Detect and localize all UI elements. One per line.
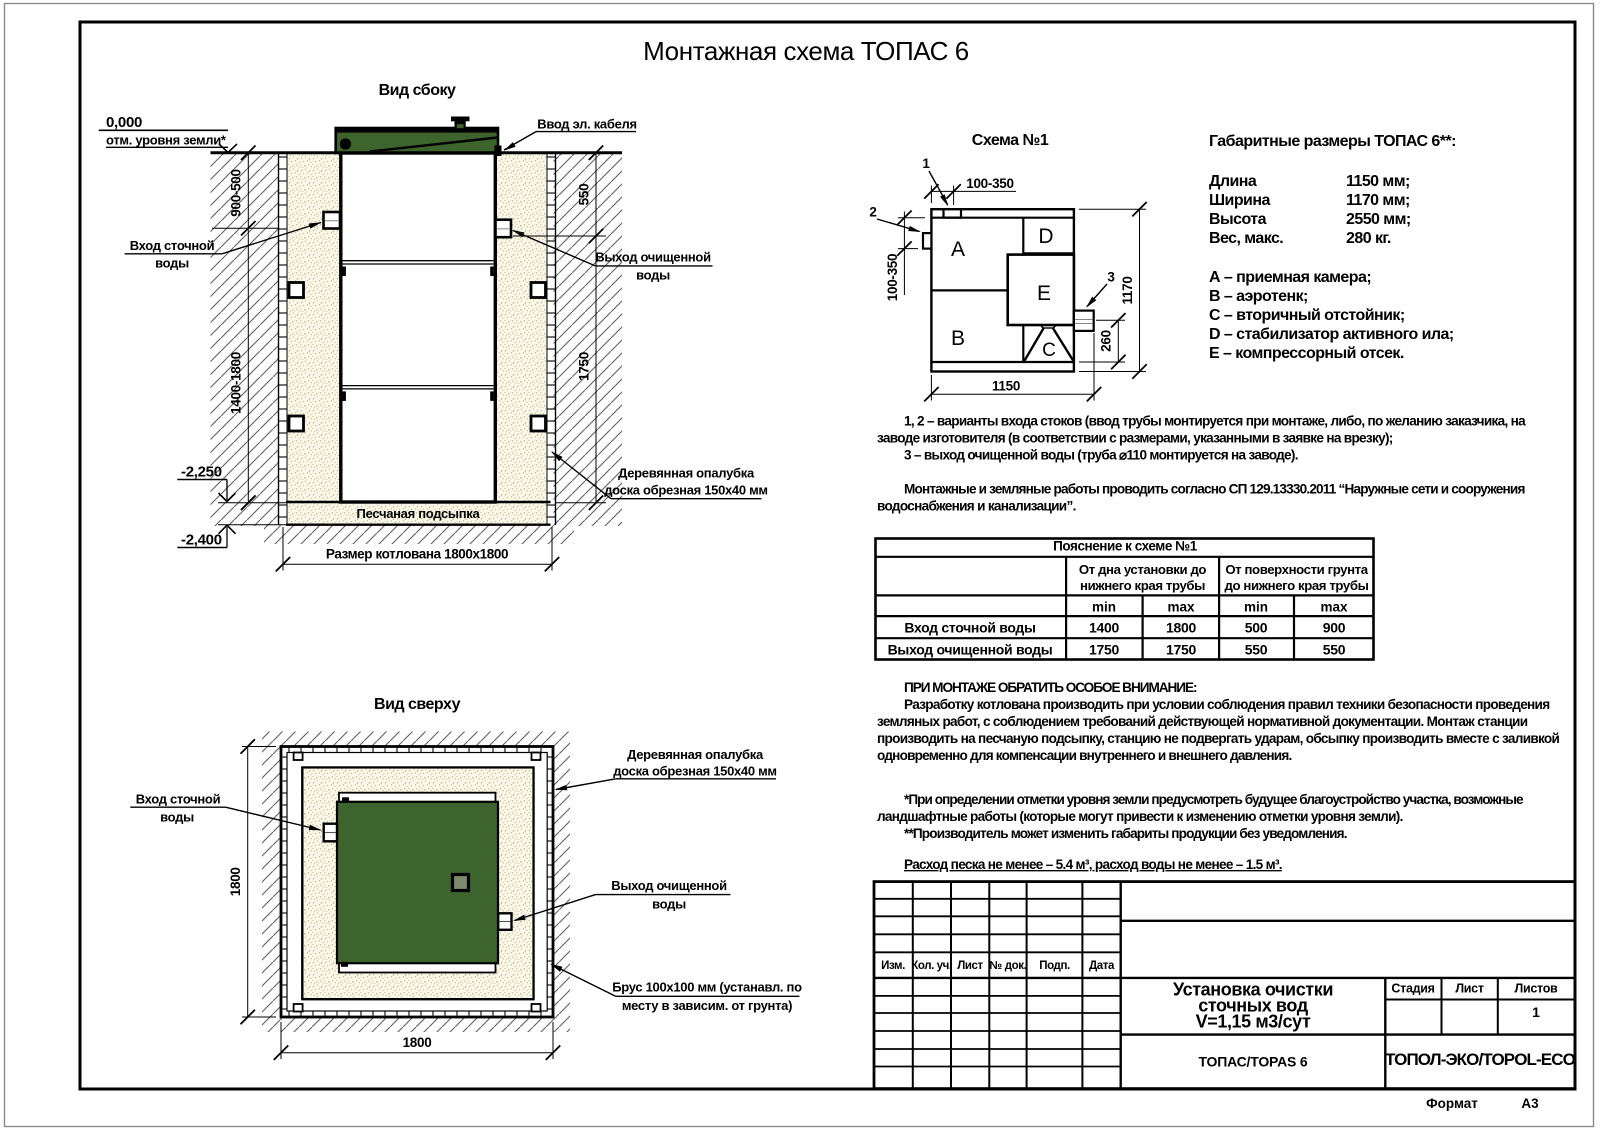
svg-text:Схема №1: Схема №1 <box>972 132 1049 149</box>
svg-text:№ док.: № док. <box>990 960 1027 972</box>
svg-text:воды: воды <box>155 256 189 271</box>
svg-text:месту в зависим. от грунта): месту в зависим. от грунта) <box>622 998 792 1013</box>
svg-text:ТОПАС/TOPAS 6: ТОПАС/TOPAS 6 <box>1199 1054 1308 1070</box>
svg-text:C: C <box>1042 340 1056 361</box>
svg-text:отм. уровня земли*: отм. уровня земли* <box>106 133 227 148</box>
svg-text:От поверхности грунта: От поверхности грунта <box>1225 562 1368 577</box>
svg-text:2550 мм;: 2550 мм; <box>1346 211 1411 228</box>
svg-text:1750: 1750 <box>1089 642 1119 658</box>
svg-text:одновременно для компенсации в: одновременно для компенсации внутреннего… <box>877 748 1291 763</box>
svg-text:Монтажные и земляные работы пр: Монтажные и земляные работы проводить со… <box>904 482 1525 497</box>
svg-text:max: max <box>1167 600 1195 615</box>
svg-text:100-350: 100-350 <box>966 176 1013 191</box>
svg-text:Деревянная опалубка: Деревянная опалубка <box>627 747 764 762</box>
svg-text:E: E <box>1037 282 1051 305</box>
svg-text:доска обрезная 150х40 мм: доска обрезная 150х40 мм <box>613 764 777 779</box>
svg-text:А – приемная камера;: А – приемная камера; <box>1209 269 1371 286</box>
svg-text:Габаритные размеры ТОПАС 6**:: Габаритные размеры ТОПАС 6**: <box>1209 133 1456 150</box>
svg-text:Подп.: Подп. <box>1039 960 1070 972</box>
svg-text:Ширина: Ширина <box>1209 192 1270 209</box>
svg-text:Брус 100х100 мм (устанавл. по: Брус 100х100 мм (устанавл. по <box>612 980 802 995</box>
svg-text:max: max <box>1320 600 1348 615</box>
svg-text:С – вторичный отстойник;: С – вторичный отстойник; <box>1209 307 1405 324</box>
svg-text:Вид сверху: Вид сверху <box>374 696 461 713</box>
svg-text:0,000: 0,000 <box>106 114 142 131</box>
svg-text:1400: 1400 <box>1089 620 1119 636</box>
svg-text:**Производитель может изменить: **Производитель может изменить габариты … <box>904 826 1347 841</box>
svg-text:Вес, макс.: Вес, макс. <box>1209 230 1283 247</box>
svg-text:Выход очищенной: Выход очищенной <box>595 250 711 265</box>
svg-text:Формат: Формат <box>1426 1096 1478 1111</box>
svg-text:Пояснение к схеме №1: Пояснение к схеме №1 <box>1053 539 1198 554</box>
svg-text:Выход очищенной воды: Выход очищенной воды <box>888 642 1053 658</box>
svg-text:А3: А3 <box>1521 1096 1539 1111</box>
svg-text:ТОПОЛ-ЭКО/TOPOL-ECO: ТОПОЛ-ЭКО/TOPOL-ECO <box>1385 1050 1576 1069</box>
svg-text:Изм.: Изм. <box>881 960 905 972</box>
svg-text:260: 260 <box>1099 330 1114 352</box>
svg-text:Вход сточной воды: Вход сточной воды <box>904 620 1035 636</box>
svg-text:1170 мм;: 1170 мм; <box>1346 192 1410 209</box>
svg-text:до нижнего края трубы: до нижнего края трубы <box>1225 578 1369 593</box>
svg-text:*При определении отметки уровн: *При определении отметки уровня земли пр… <box>904 792 1524 807</box>
svg-text:производить на песчаную подсып: производить на песчаную подсыпку, станци… <box>877 731 1560 746</box>
svg-text:3: 3 <box>1107 270 1115 285</box>
svg-text:Высота: Высота <box>1209 211 1267 228</box>
svg-text:1150 мм;: 1150 мм; <box>1346 173 1410 190</box>
svg-text:2: 2 <box>869 205 876 220</box>
svg-text:1750: 1750 <box>1166 642 1196 658</box>
svg-text:-2,250: -2,250 <box>181 464 222 481</box>
svg-text:Вид сбоку: Вид сбоку <box>379 82 456 99</box>
svg-text:min: min <box>1092 600 1116 615</box>
svg-text:доска обрезная 150х40 мм: доска обрезная 150х40 мм <box>604 483 768 498</box>
svg-text:1800: 1800 <box>403 1035 432 1050</box>
svg-text:3 – выход очищенной воды (труб: 3 – выход очищенной воды (труба ⌀110 мон… <box>904 448 1298 463</box>
svg-text:Стадия: Стадия <box>1391 982 1434 996</box>
svg-text:E – компрессорный отсек.: E – компрессорный отсек. <box>1209 345 1404 362</box>
svg-text:1400-1800: 1400-1800 <box>229 352 244 414</box>
svg-text:воды: воды <box>636 268 670 283</box>
svg-text:Выход очищенной: Выход очищенной <box>611 878 727 893</box>
svg-text:1: 1 <box>922 156 930 171</box>
svg-text:-2,400: -2,400 <box>181 532 222 549</box>
svg-text:550: 550 <box>1323 642 1346 658</box>
svg-text:1800: 1800 <box>228 867 243 896</box>
svg-text:Ввод эл. кабеля: Ввод эл. кабеля <box>537 117 637 132</box>
svg-text:Вход сточной: Вход сточной <box>136 792 221 807</box>
svg-text:D – стабилизатор активного ила: D – стабилизатор активного ила; <box>1209 326 1454 343</box>
svg-text:550: 550 <box>577 184 592 206</box>
svg-text:Лист: Лист <box>1455 982 1484 996</box>
svg-text:Кол. уч.: Кол. уч. <box>911 960 952 972</box>
svg-text:A: A <box>951 238 965 261</box>
svg-text:Размер котлована 1800х1800: Размер котлована 1800х1800 <box>326 547 508 562</box>
svg-text:Песчаная подсыпка: Песчаная подсыпка <box>357 506 481 521</box>
svg-text:Лист: Лист <box>957 960 983 972</box>
svg-text:B: B <box>951 327 965 350</box>
svg-text:воды: воды <box>652 897 686 912</box>
svg-text:550: 550 <box>1245 642 1268 658</box>
svg-text:1750: 1750 <box>577 352 592 381</box>
svg-text:1, 2 – варианты входа стоков: 1, 2 – варианты входа стоков (ввод трубы… <box>904 414 1526 429</box>
svg-text:водоснабжения и канализации”.: водоснабжения и канализации”. <box>877 499 1076 514</box>
svg-text:900: 900 <box>1323 620 1346 636</box>
svg-text:воды: воды <box>160 810 194 825</box>
svg-text:нижнего края трубы: нижнего края трубы <box>1080 578 1205 593</box>
svg-text:280 кг.: 280 кг. <box>1346 230 1391 247</box>
svg-text:1170: 1170 <box>1120 276 1135 304</box>
svg-text:Разработку котлована производи: Разработку котлована производить при усл… <box>904 697 1549 712</box>
svg-text:ландшафтные работы (которые мо: ландшафтные работы (которые могут привес… <box>877 809 1403 824</box>
svg-text:1150: 1150 <box>992 379 1020 394</box>
svg-text:Расход песка не менее – 5.4 м³: Расход песка не менее – 5.4 м³, расход в… <box>904 857 1282 872</box>
svg-text:Дата: Дата <box>1089 960 1115 972</box>
svg-text:Монтажная схема ТОПАС 6: Монтажная схема ТОПАС 6 <box>643 36 969 66</box>
svg-text:D: D <box>1038 225 1053 248</box>
svg-text:заводе изготовителя (в соответ: заводе изготовителя (в соответствии с ра… <box>877 431 1393 446</box>
svg-text:min: min <box>1244 600 1268 615</box>
svg-text:900-500: 900-500 <box>229 169 244 216</box>
svg-text:1800: 1800 <box>1166 620 1196 636</box>
svg-text:500: 500 <box>1245 620 1268 636</box>
svg-text:V=1,15 м3/сут: V=1,15 м3/сут <box>1196 1012 1311 1032</box>
svg-text:От дна установки до: От дна установки до <box>1079 562 1207 577</box>
svg-text:Вход сточной: Вход сточной <box>130 238 215 253</box>
svg-text:Длина: Длина <box>1209 173 1257 190</box>
svg-text:В – аэротенк;: В – аэротенк; <box>1209 288 1308 305</box>
svg-text:100-350: 100-350 <box>885 254 900 301</box>
svg-text:Деревянная опалубка: Деревянная опалубка <box>618 466 755 481</box>
svg-text:1: 1 <box>1532 1004 1540 1020</box>
svg-text:ПРИ МОНТАЖЕ ОБРАТИТЬ ОСОБОЕ ВН: ПРИ МОНТАЖЕ ОБРАТИТЬ ОСОБОЕ ВНИМАНИЕ: <box>904 680 1197 695</box>
svg-text:земляных работ, с соблюдением: земляных работ, с соблюдением требований… <box>877 714 1528 729</box>
svg-text:Листов: Листов <box>1515 982 1558 996</box>
